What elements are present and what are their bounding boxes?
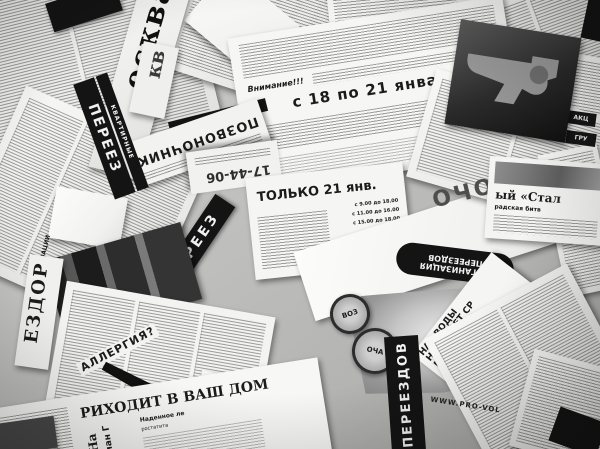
revolver-icon [456,30,570,117]
pereezdov-banner-text: ПЕРЕЕЗДОВ [394,340,416,448]
ezdor-text: ЕЗДОР [23,261,53,345]
kv-letters-text: кв [143,48,169,80]
roman-text: Роман Г [102,424,118,449]
photo-collage: осква кв Внимание!!! с 18 по 21 января 2… [0,0,600,449]
article-photo [494,161,600,190]
rostatita-text: ростатита [141,423,169,433]
nadennoe-text: Наденное ле [140,411,185,424]
text-lines [493,214,598,239]
stalingrad-subhead: радская битв [494,204,541,214]
stalingrad-headline: ый «Стал [495,188,562,205]
na-quote-text: «На [85,433,102,449]
stalingrad-scrap: ый «Стал радская битв [484,156,600,246]
ocha-label: ОЧА [366,345,384,356]
gru-label: ГРУ [574,134,588,143]
voz-label: ВОЗ [341,308,359,321]
akc-label: АКЦ [573,114,589,123]
revolver-photo [444,19,581,143]
